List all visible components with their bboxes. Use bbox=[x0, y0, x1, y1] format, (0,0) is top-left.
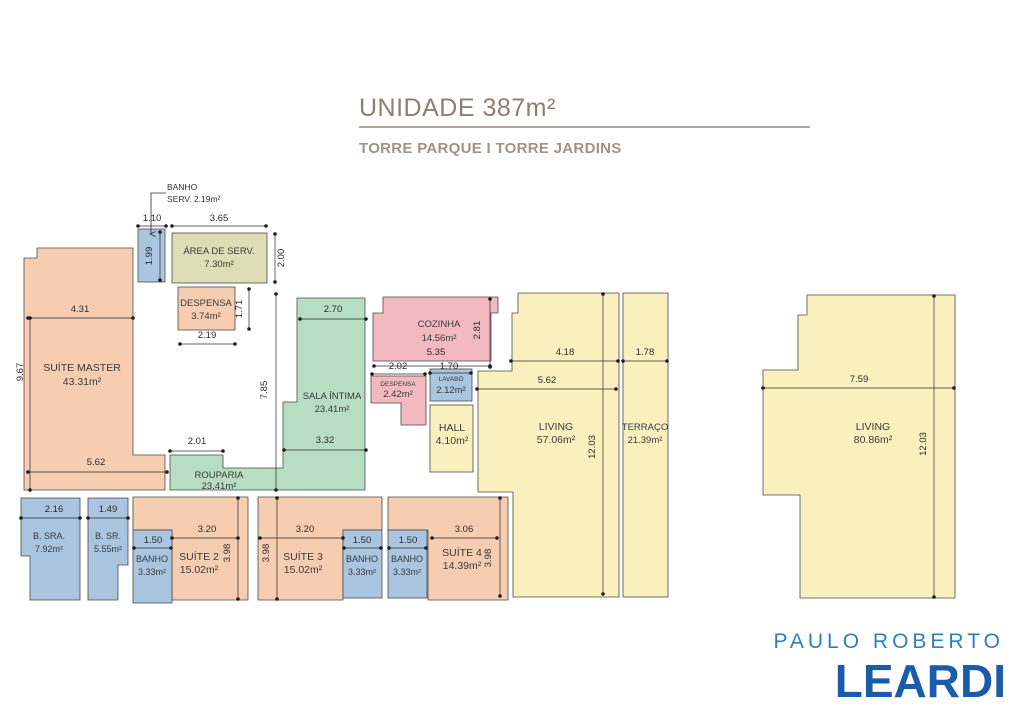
dim-label: 3.98 bbox=[261, 544, 272, 563]
room-area: 5.55m² bbox=[94, 544, 122, 554]
room-area: 80.86m² bbox=[854, 434, 893, 446]
room-label: LIVING bbox=[856, 421, 890, 433]
room-area: 3.33m² bbox=[138, 567, 166, 577]
dim-label: 1.50 bbox=[144, 535, 163, 546]
dim-label: 3.06 bbox=[455, 524, 474, 535]
floor-plan-canvas: UNIDADE 387m² TORRE PARQUE I TORRE JARDI… bbox=[0, 0, 1023, 725]
room-area: 3.74m² bbox=[191, 311, 221, 322]
dim-label: 3.20 bbox=[296, 524, 315, 535]
dim-label: 5.35 bbox=[427, 347, 446, 358]
room-area: 3.33m² bbox=[348, 567, 376, 577]
dim-label: 3.98 bbox=[222, 544, 233, 563]
brand-logo: PAULO ROBERTO LEARDI bbox=[773, 630, 1006, 707]
dim-label: 3.32 bbox=[316, 435, 335, 446]
dim-label: 3.20 bbox=[198, 524, 217, 535]
dim-label: 7.59 bbox=[850, 374, 869, 385]
dim-label: 1.99 bbox=[144, 247, 155, 266]
room-label: B. SR. bbox=[95, 531, 121, 541]
room-label: BANHO bbox=[136, 554, 168, 564]
dim-label: 1.71 bbox=[234, 300, 245, 319]
room-area: 14.56m² bbox=[422, 333, 457, 344]
room-area: 23.41m² bbox=[202, 481, 237, 492]
dim-label: 12.03 bbox=[918, 432, 929, 456]
dim-label: 1.50 bbox=[399, 535, 418, 546]
dim-label: 1.70 bbox=[440, 361, 459, 372]
room-label: COZINHA bbox=[418, 319, 461, 330]
room-label: ROUPARIA bbox=[195, 470, 245, 481]
room-area: 57.06m² bbox=[537, 434, 576, 446]
room-label: SUÍTE MASTER bbox=[43, 361, 121, 374]
room-label: LIVING bbox=[539, 421, 573, 433]
room-label: SUÍTE 4 bbox=[442, 546, 482, 559]
room-label: ÁREA DE SERV. bbox=[183, 246, 254, 257]
room-area: 23.41m² bbox=[315, 404, 350, 415]
room-area: 14.39m² bbox=[443, 560, 482, 572]
room-area: 7.30m² bbox=[204, 259, 234, 270]
room-label: SUÍTE 3 bbox=[283, 550, 323, 563]
room-label: SUÍTE 2 bbox=[179, 550, 219, 563]
room-area: 43.31m² bbox=[63, 376, 102, 388]
brand-logo-main-line: LEARDI bbox=[835, 655, 1006, 707]
room-area: 2.42m² bbox=[383, 389, 413, 400]
dim-label: 3.65 bbox=[210, 213, 229, 224]
dim-label: 2.70 bbox=[324, 304, 343, 315]
dim-label: 12.03 bbox=[587, 435, 598, 459]
dim-label: 9.67 bbox=[15, 363, 26, 382]
callout-line1: BANHO bbox=[167, 182, 198, 192]
dim-label: 2.00 bbox=[276, 249, 287, 268]
dim-label: 4.18 bbox=[556, 347, 575, 358]
dim-label: 2.01 bbox=[188, 436, 207, 447]
dim-label: 2.16 bbox=[45, 504, 64, 515]
room-label: BANHO bbox=[346, 554, 378, 564]
room-label: TERRAÇO bbox=[622, 422, 668, 433]
room-label: DESPENSA bbox=[380, 381, 416, 388]
room-label: B. SRA. bbox=[33, 531, 65, 541]
room-label: HALL bbox=[439, 422, 465, 434]
callout-line2: SERV. 2.19m² bbox=[167, 194, 221, 204]
dim-label: 1.10 bbox=[143, 213, 162, 224]
dim-label: 1.49 bbox=[99, 504, 118, 515]
room-area: 3.33m² bbox=[393, 567, 421, 577]
floor-plan-page: UNIDADE 387m² TORRE PARQUE I TORRE JARDI… bbox=[0, 0, 1023, 725]
room-area: 15.02m² bbox=[284, 564, 323, 576]
dim-label: 2.81 bbox=[472, 321, 483, 340]
dim-label: 7.85 bbox=[259, 381, 270, 400]
room-area: 21.39m² bbox=[628, 435, 663, 446]
brand-logo-top-line: PAULO ROBERTO bbox=[773, 630, 1004, 653]
room-label: LAVABO bbox=[438, 376, 463, 383]
dim-label: 5.62 bbox=[538, 375, 557, 386]
dim-label: 1.50 bbox=[353, 535, 372, 546]
room-label: DESPENSA bbox=[180, 298, 232, 309]
room-area-serv bbox=[172, 233, 267, 283]
room-area: 15.02m² bbox=[180, 564, 219, 576]
dim-label: 4.31 bbox=[71, 304, 90, 315]
room-area: 7.92m² bbox=[35, 544, 63, 554]
dim-label: 2.02 bbox=[389, 361, 408, 372]
dim-label: 5.62 bbox=[87, 457, 106, 468]
room-area: 4.10m² bbox=[436, 435, 469, 447]
room-label: SALA ÍNTIMA bbox=[303, 391, 362, 402]
page-subtitle: TORRE PARQUE I TORRE JARDINS bbox=[359, 140, 622, 157]
dim-label: 2.19 bbox=[198, 330, 217, 341]
page-title: UNIDADE 387m² bbox=[359, 94, 556, 122]
dim-label: 1.78 bbox=[636, 347, 655, 358]
room-area: 2.12m² bbox=[436, 385, 466, 396]
dim-label: 3.98 bbox=[483, 549, 494, 568]
room-label: BANHO bbox=[391, 554, 423, 564]
